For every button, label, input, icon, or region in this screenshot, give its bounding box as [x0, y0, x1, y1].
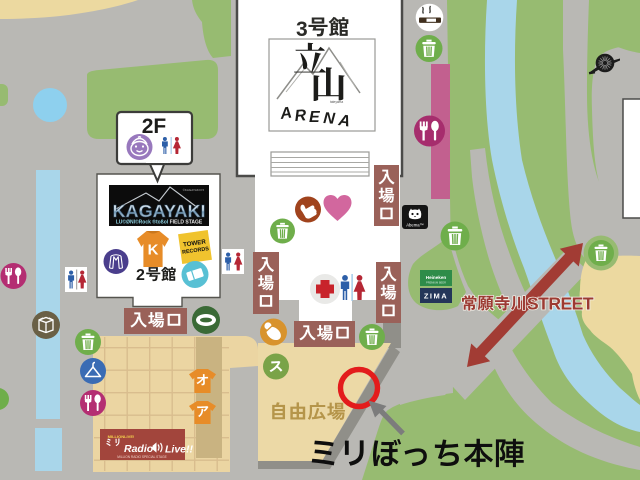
svg-text:KAGAYAKI: KAGAYAKI: [113, 201, 206, 221]
svg-text:STREET: STREET: [527, 294, 594, 314]
svg-text:©KAGAYAKI PJ: ©KAGAYAKI PJ: [183, 188, 205, 192]
svg-text:MILLION RADIO SPECIAL STAGE: MILLION RADIO SPECIAL STAGE: [117, 455, 166, 459]
svg-text:LU©ØNI©Rock ®toßol FIELD STAGE: LU©ØNI©Rock ®toßol FIELD STAGE: [116, 219, 203, 226]
svg-text:K: K: [148, 242, 159, 259]
svg-text:2: 2: [136, 267, 145, 284]
svg-text:N: N: [323, 110, 336, 128]
svg-text:MILLIONLiVE!: MILLIONLiVE!: [108, 434, 135, 439]
svg-text:Live!!: Live!!: [165, 444, 194, 456]
svg-text:2F: 2F: [142, 115, 167, 138]
svg-text:Radio: Radio: [124, 443, 154, 455]
svg-text:R: R: [294, 107, 307, 125]
svg-text:3: 3: [296, 18, 308, 41]
svg-text:Abema™: Abema™: [406, 223, 423, 228]
svg-text:ZIMA: ZIMA: [424, 292, 448, 301]
svg-text:E: E: [309, 109, 321, 126]
svg-text:tateyama: tateyama: [330, 100, 343, 104]
svg-text:A: A: [278, 105, 293, 124]
svg-text:Heineken: Heineken: [426, 275, 447, 280]
svg-text:A: A: [336, 112, 351, 131]
svg-text:PREMIUM BEER: PREMIUM BEER: [426, 281, 446, 285]
